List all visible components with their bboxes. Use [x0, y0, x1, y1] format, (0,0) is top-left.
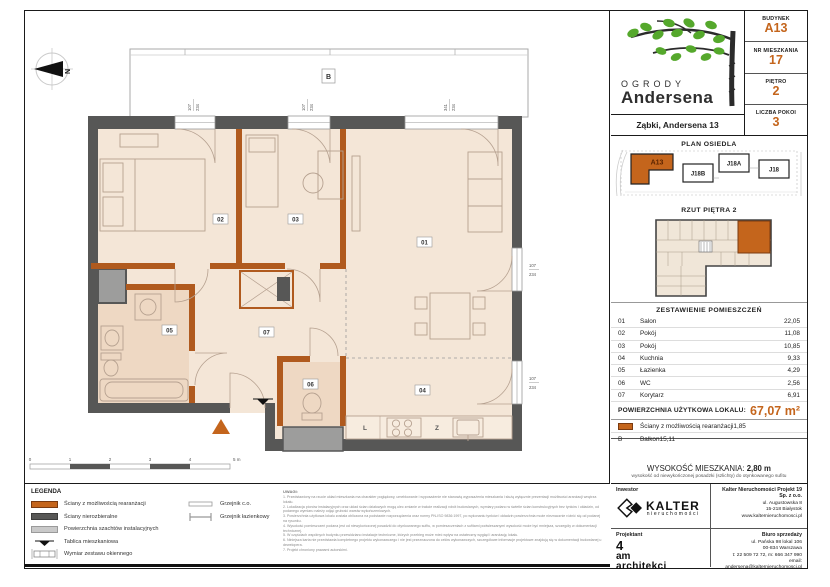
project-address: Ząbki, Andersena 13	[611, 115, 744, 135]
site-plan-map: A13 J18B J18A J18	[611, 148, 807, 200]
room-no: 04	[611, 355, 640, 362]
svg-text:107: 107	[187, 103, 192, 111]
room-no: 05	[611, 367, 640, 374]
field-value: 17	[769, 54, 783, 68]
architect-logo: 4 am architekci	[616, 539, 705, 572]
table-row: 03Pokój10,85	[611, 341, 807, 353]
tablica-legend-icon	[31, 536, 58, 548]
height-value: 2,80 m	[747, 464, 771, 473]
legend-label: Ściany nierozbieralne	[64, 514, 117, 520]
legend-swatch-dark	[31, 513, 58, 520]
compass-icon: N	[31, 48, 73, 90]
room-area: 22,05	[764, 318, 807, 325]
site-building-j18b-label: J18B	[691, 172, 706, 178]
rooms-table: ZESTAWIENIE POMIESZCZEŃ 01Salon22,05 02P…	[611, 303, 807, 439]
legend-swatch-orange	[31, 501, 58, 508]
floor-thumb-unit-highlight	[738, 221, 770, 253]
room-area: 2,56	[764, 380, 807, 387]
site-plan-title: PLAN OSIEDLA	[611, 141, 807, 148]
wc-floor	[283, 362, 340, 426]
room-no: 02	[611, 330, 640, 337]
site-building-a13-label: A13	[651, 160, 664, 167]
designer-label: Projektant	[616, 532, 705, 538]
room-no: 07	[611, 392, 640, 399]
balcony-label: B	[326, 74, 331, 81]
svg-text:341: 341	[443, 103, 448, 111]
site-building-a13	[631, 154, 673, 184]
table-row: 05Łazienka4,29	[611, 365, 807, 377]
sink-label: Z	[435, 425, 439, 432]
note-line: 2. Lokalizacja pionów instalacyjnych ora…	[283, 505, 605, 515]
svg-text:107: 107	[529, 376, 537, 381]
svg-text:2: 2	[109, 457, 112, 462]
legend-label: Ściany z możliwością rearanżacji	[64, 501, 146, 507]
svg-text:4: 4	[189, 457, 192, 462]
room-name: Korytarz	[640, 392, 764, 399]
room-name: WC	[640, 380, 764, 387]
total-area-row: POWIERZCHNIA UŻYTKOWA LOKALU: 67,07 m²	[611, 402, 807, 420]
company-name: Kalter Nieruchomości Projekt 19 Sp. z o.…	[716, 487, 802, 499]
note-line: 6. Niniejsza karta nie przedstawia kompl…	[283, 538, 605, 548]
height-note: wysokość od niewykończonej posadzki (szl…	[632, 474, 787, 479]
floor-thumb-drawing	[611, 214, 807, 300]
notes-block: UWAGI: 1. Przedstawiony na rzucie układ …	[283, 489, 605, 553]
svg-text:234: 234	[451, 103, 456, 111]
svg-text:234: 234	[529, 272, 537, 277]
floor-thumb-title: RZUT PIĘTRA 2	[611, 207, 807, 214]
svg-text:04: 04	[419, 389, 426, 395]
room-area: 6,91	[764, 392, 807, 399]
legend-strip: LEGENDA Ściany z możliwością rearanżacji…	[25, 484, 610, 567]
legend-label: Wymiar zestawu okiennego	[64, 551, 132, 557]
kalter-name: KALTER	[646, 500, 700, 512]
info-column: OGRODY Andersena Ząbki, Andersena 13 BUD…	[611, 11, 807, 567]
legend-swatch-gray	[31, 526, 58, 533]
entrance-marker	[212, 419, 230, 434]
logo-line2: Andersena	[621, 89, 713, 106]
note-line: 7. Projekt chroniony prawami autorskimi.	[283, 548, 605, 553]
legend-label: Powierzchnia szachtów instalacyjnych	[64, 526, 159, 532]
note-line: 4. Wysokość pomieszczeń podana jest od n…	[283, 524, 605, 534]
room-no: 03	[611, 343, 640, 350]
logo: OGRODY Andersena	[611, 11, 744, 115]
svg-text:05: 05	[166, 329, 173, 335]
table-row: Ściany z możliwością rearanżacji 1,85	[611, 420, 807, 433]
floor-thumb-panel: RZUT PIĘTRA 2	[611, 203, 807, 303]
legend-label: Grzejnik c.o.	[220, 501, 251, 507]
room-area: 4,29	[764, 367, 807, 374]
svg-text:01: 01	[421, 241, 428, 247]
bathroom-floor	[98, 290, 189, 403]
total-area-value: 67,07 m²	[750, 404, 807, 418]
svg-text:07: 07	[263, 331, 270, 337]
height-block: WYSOKOŚĆ MIESZKANIA: 2,80 m wysokość od …	[611, 439, 807, 484]
extra-name: Ściany z możliwością rearanżacji	[640, 423, 733, 430]
shaft-bathroom	[98, 269, 126, 303]
field-value: 3	[773, 116, 780, 130]
svg-text:03: 03	[292, 218, 299, 224]
table-row: 04Kuchnia9,33	[611, 353, 807, 365]
svg-text:5 m: 5 m	[233, 457, 241, 462]
sales-address-line: email: andersena@kalternieruchomosci.pl	[716, 559, 802, 572]
site-plan-panel: PLAN OSIEDLA A13 J18B J18A J18	[611, 136, 807, 203]
header-block: OGRODY Andersena Ząbki, Andersena 13 BUD…	[611, 11, 807, 136]
room-area: 9,33	[764, 355, 807, 362]
site-building-j18-label: J18	[769, 168, 780, 174]
svg-text:234: 234	[529, 385, 537, 390]
shaft-entry	[283, 427, 343, 451]
legend-label: Tablica mieszkaniowa	[64, 539, 118, 545]
investor-label: Inwestor	[616, 487, 705, 493]
svg-text:3: 3	[149, 457, 152, 462]
svg-text:107: 107	[301, 103, 306, 111]
svg-text:06: 06	[307, 383, 314, 389]
rearrangeable-walls-swatch	[618, 423, 633, 430]
kalter-logo: KALTER nieruchomości	[616, 497, 705, 519]
svg-text:107: 107	[529, 263, 537, 268]
room-no: 01	[611, 318, 640, 325]
room-area: 10,85	[764, 343, 807, 350]
total-area-label: POWIERZCHNIA UŻYTKOWA LOKALU:	[611, 407, 750, 414]
room-area: 11,08	[764, 330, 807, 337]
room-no: 06	[611, 380, 640, 387]
extra-area: 1,85	[733, 423, 745, 430]
svg-text:1: 1	[69, 457, 72, 462]
floor-plan-drawing: N B	[25, 11, 609, 483]
legend-title: LEGENDA	[31, 488, 61, 495]
radiator-bath-icon	[187, 511, 214, 523]
sales-office-label: Biuro sprzedaży	[716, 532, 802, 538]
company-address-line: www.kalternieruchomosci.pl	[716, 514, 802, 520]
radiator-co-icon	[187, 498, 214, 510]
floor-plan-panel: N B	[25, 11, 610, 484]
fridge-label: L	[363, 425, 367, 432]
field-value: A13	[765, 22, 788, 36]
svg-text:234: 234	[195, 103, 200, 111]
svg-text:234: 234	[309, 103, 314, 111]
note-line: 1. Przedstawiony na rzucie układ mieszka…	[283, 495, 605, 505]
compass-label: N	[65, 69, 72, 74]
note-line: 3. Powierzchnia użytkowa lokalu została …	[283, 514, 605, 524]
svg-text:0: 0	[29, 457, 32, 462]
table-row: 01Salon22,05	[611, 316, 807, 328]
table-row: 02Pokój11,08	[611, 328, 807, 340]
wardrobe	[240, 271, 293, 308]
scale-bar: 0 1 2 3 4 5 m	[29, 457, 241, 469]
kalter-logo-icon	[616, 497, 642, 519]
contact-block: Inwestor KALTER nieruchomości Kalter Nie…	[611, 484, 807, 567]
unit-info: BUDYNEK A13 NR MIESZKANIA 17 PIĘTRO 2 LI…	[745, 11, 807, 135]
field-value: 2	[773, 85, 780, 99]
room-name: Pokój	[640, 330, 764, 337]
rooms-table-title: ZESTAWIENIE POMIESZCZEŃ	[611, 307, 807, 314]
height-label: WYSOKOŚĆ MIESZKANIA:	[647, 464, 744, 473]
room-name: Salon	[640, 318, 764, 325]
floorplan-sheet: N B	[0, 0, 830, 587]
notes-title: UWAGI:	[283, 489, 605, 494]
svg-text:02: 02	[217, 218, 224, 224]
room-name: Łazienka	[640, 367, 764, 374]
window-dim-legend-icon	[31, 548, 58, 560]
site-building-j18a-label: J18A	[727, 162, 742, 168]
room-name: Pokój	[640, 343, 764, 350]
kalter-sub: nieruchomości	[646, 512, 700, 517]
room-name: Kuchnia	[640, 355, 764, 362]
table-row: 06WC2,56	[611, 377, 807, 389]
legend-label: Grzejnik łazienkowy	[220, 514, 269, 520]
sheet-frame: N B	[24, 10, 808, 569]
architect-line: architekci	[616, 562, 705, 572]
table-row: 07Korytarz6,91	[611, 390, 807, 402]
